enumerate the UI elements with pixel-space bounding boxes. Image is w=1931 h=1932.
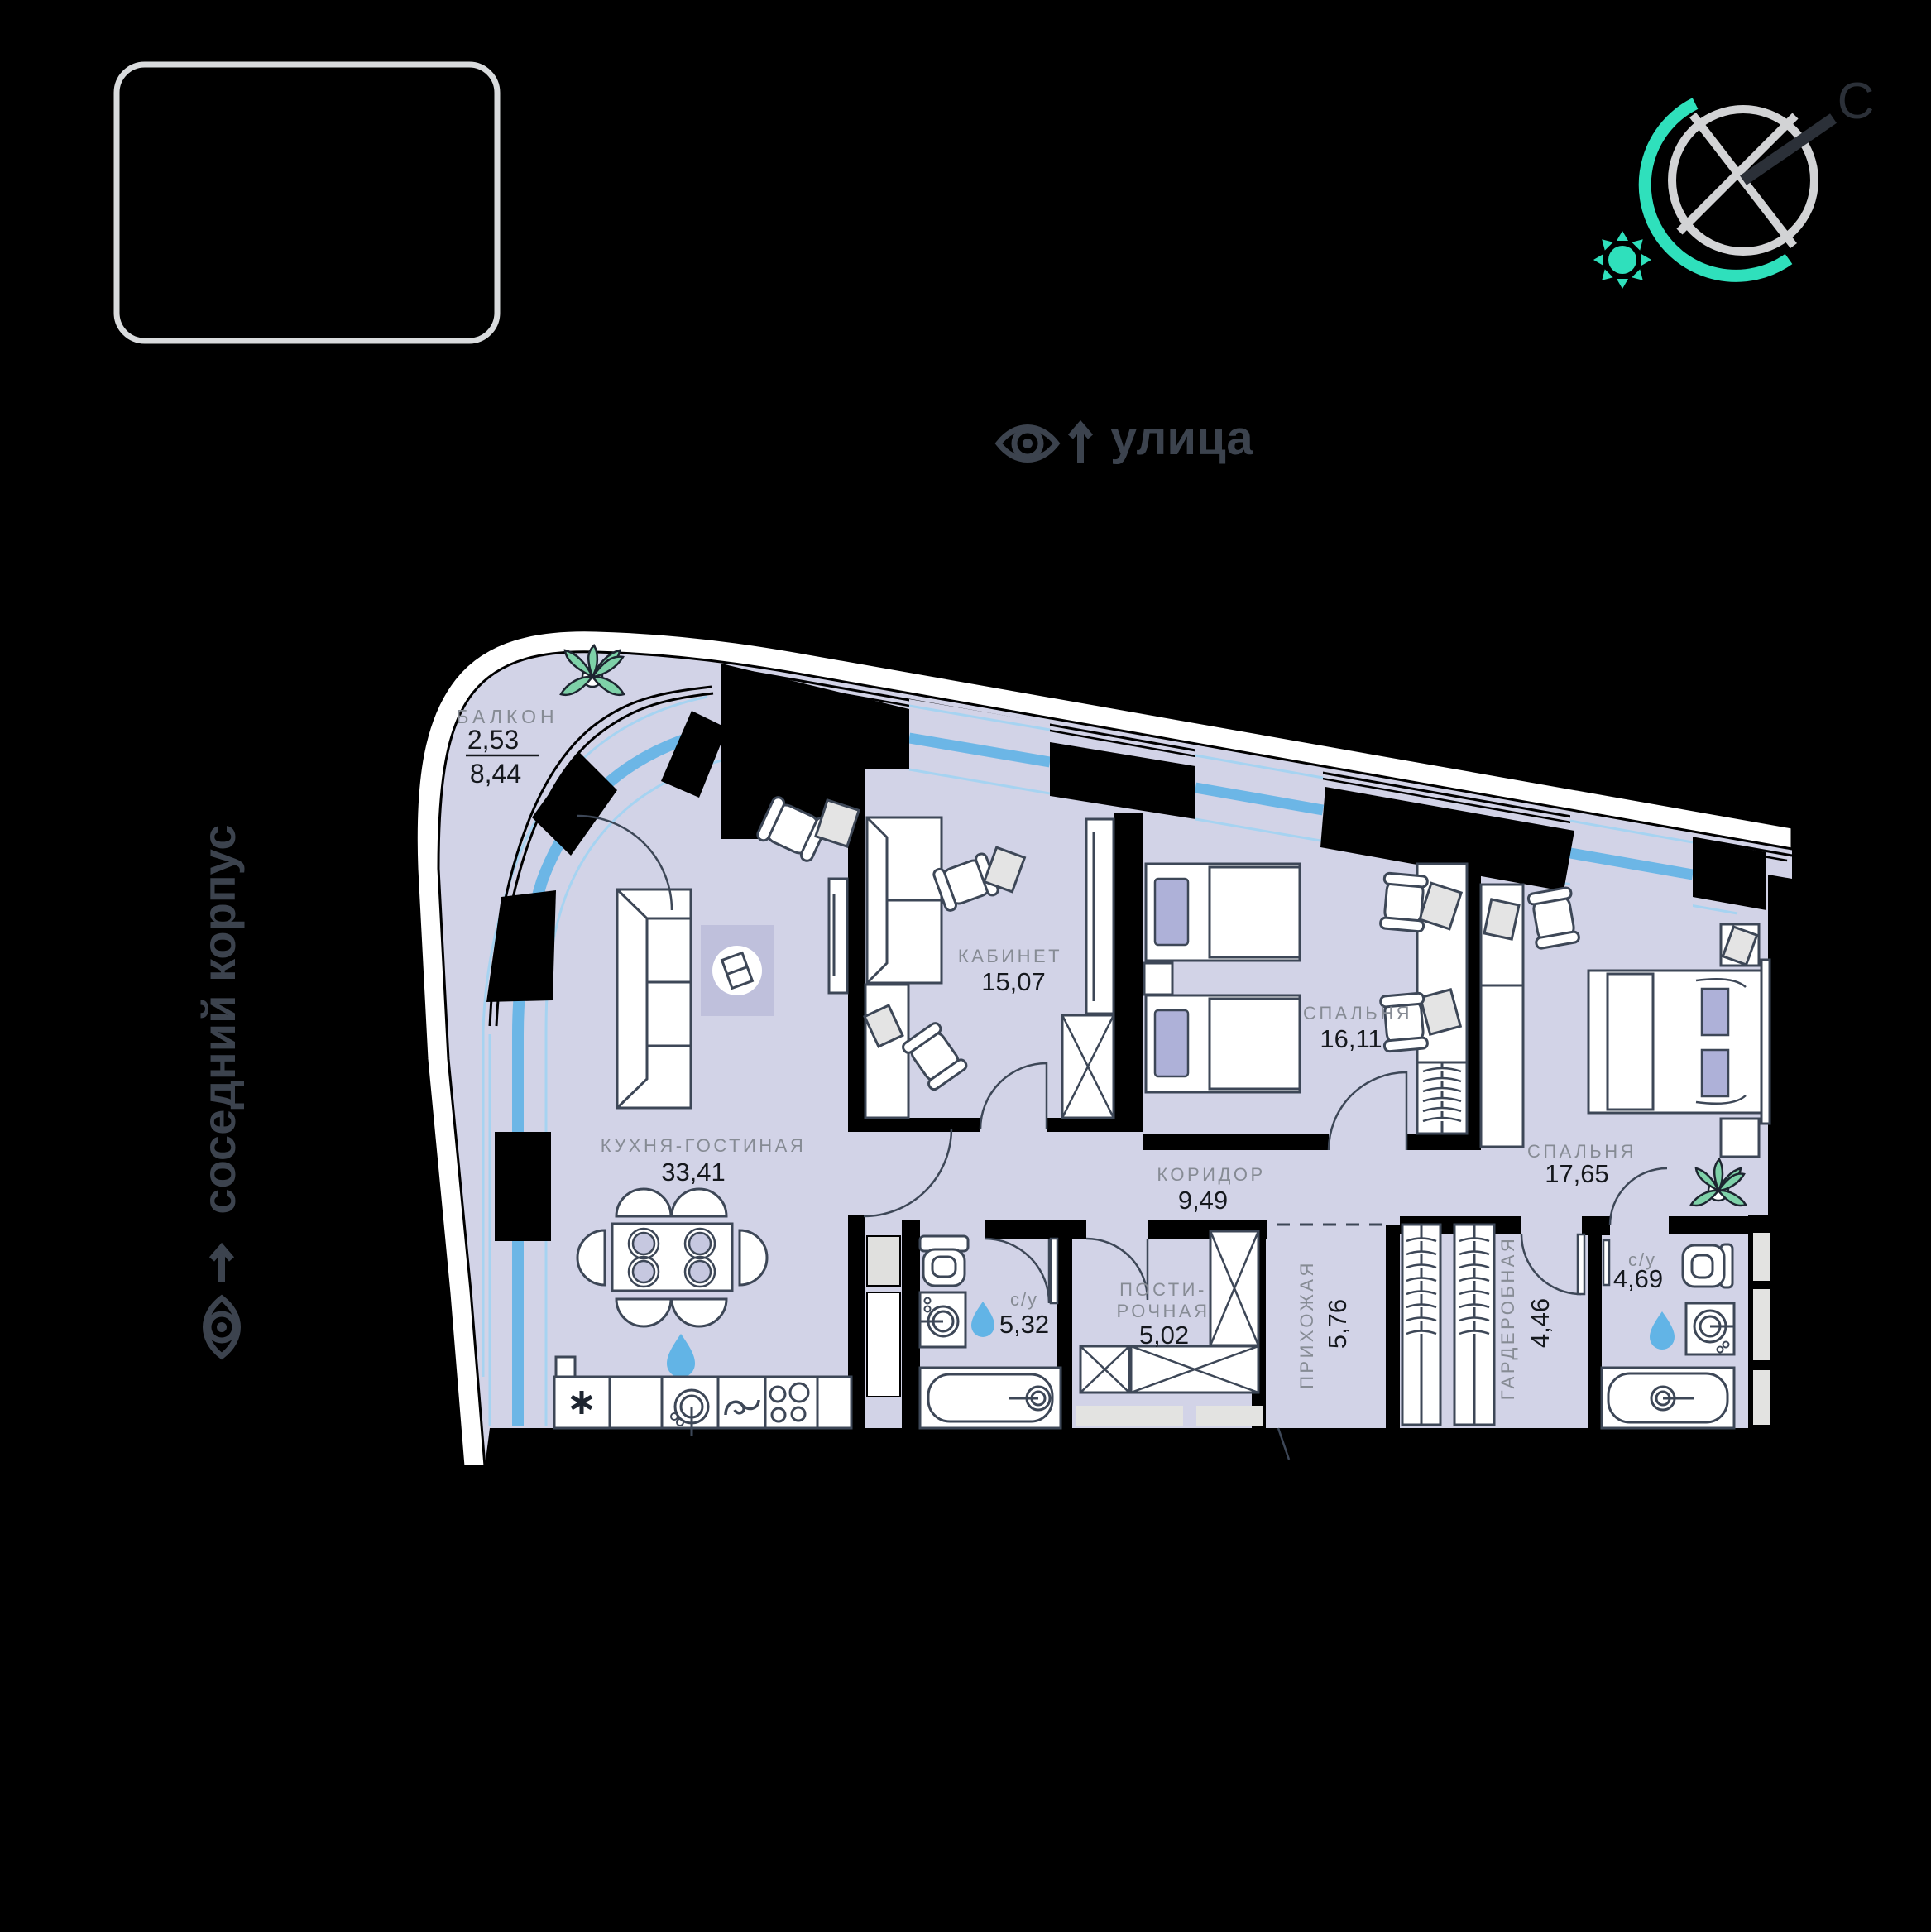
svg-text:5,02: 5,02 — [1139, 1321, 1189, 1350]
svg-text:9,49: 9,49 — [1178, 1186, 1228, 1215]
svg-text:СПАЛЬНЯ: СПАЛЬНЯ — [1303, 1003, 1412, 1024]
svg-text:улица: улица — [1110, 411, 1253, 465]
svg-text:15,07: 15,07 — [981, 967, 1046, 996]
svg-text:4,69: 4,69 — [1613, 1264, 1663, 1293]
svg-text:КАБИНЕТ: КАБИНЕТ — [958, 946, 1062, 966]
svg-text:соседний корпус: соседний корпус — [193, 824, 245, 1214]
svg-text:C: C — [1838, 73, 1875, 130]
svg-text:2,53: 2,53 — [467, 725, 519, 755]
svg-text:ПОСТИ-: ПОСТИ- — [1119, 1279, 1207, 1300]
svg-text:5,32: 5,32 — [999, 1310, 1049, 1339]
svg-text:ПРИХОЖАЯ: ПРИХОЖАЯ — [1296, 1260, 1317, 1389]
svg-text:ГАРДЕРОБНАЯ: ГАРДЕРОБНАЯ — [1497, 1236, 1518, 1401]
svg-text:КОРИДОР: КОРИДОР — [1157, 1164, 1265, 1185]
svg-text:17,65: 17,65 — [1545, 1159, 1609, 1188]
svg-text:5,76: 5,76 — [1323, 1299, 1352, 1349]
svg-text:4,46: 4,46 — [1526, 1298, 1555, 1348]
svg-text:с/у: с/у — [1010, 1289, 1038, 1310]
svg-text:8,44: 8,44 — [470, 759, 521, 789]
svg-text:РОЧНАЯ: РОЧНАЯ — [1117, 1301, 1210, 1321]
svg-text:КУХНЯ-ГОСТИНАЯ: КУХНЯ-ГОСТИНАЯ — [601, 1135, 806, 1156]
svg-text:33,41: 33,41 — [661, 1158, 726, 1187]
svg-text:16,11: 16,11 — [1320, 1024, 1382, 1053]
